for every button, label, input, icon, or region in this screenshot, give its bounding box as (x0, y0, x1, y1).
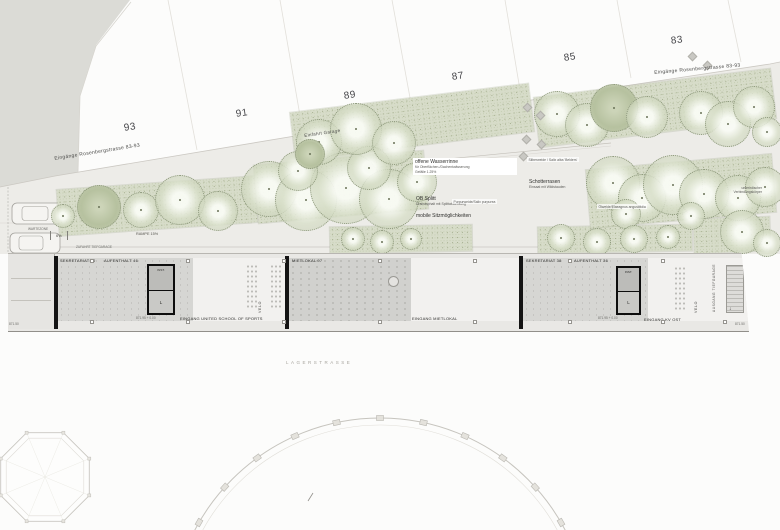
round-building-outline (171, 418, 589, 530)
column-marker (90, 320, 94, 324)
tree-icon (370, 230, 394, 254)
tree-species-label: Silberweide / Salix alba 'Belders' (527, 157, 579, 162)
tree-icon (372, 121, 416, 165)
lift-core: INST. L (616, 266, 641, 315)
tree-icon (51, 204, 75, 228)
tree-icon (77, 185, 121, 229)
arrow-down-icon: ↓ (729, 306, 732, 312)
underground-link-annotation: unterirdischer Verbindungskörper (704, 186, 762, 195)
column-marker (378, 320, 382, 324)
building-number: 85 (563, 51, 577, 65)
lift-label: L (618, 292, 639, 313)
column-marker (186, 259, 190, 263)
entrance-zone-mietlokal (411, 258, 519, 321)
bike-racks (246, 264, 258, 308)
tree-icon (155, 175, 205, 225)
ramp-label: RAMPE 15% (136, 232, 158, 237)
tree-icon (123, 192, 159, 228)
street-name-label: LAGERSTRASSE (286, 360, 352, 366)
round-building-buttresses (195, 416, 565, 527)
seating-annotation: mobile Sitzmöglichkeiten (416, 213, 471, 219)
ground-floor-plan: INST. L INST. L SEKRETARIAT 20 AUFENTHAL… (8, 253, 749, 332)
elevation-label: 871.50 (735, 322, 745, 326)
annotation-sub: Gefälle 1.25% (415, 170, 515, 174)
tree-icon (656, 225, 680, 249)
column-marker (186, 320, 190, 324)
annotation-sub: Einsaat mit Wildstauden (529, 185, 565, 189)
tree-icon (295, 139, 325, 169)
room-label: SEKRETARIAT 38 (526, 258, 561, 263)
elevation-label: 871.50 (9, 322, 19, 326)
building-number: 93 (123, 121, 137, 135)
tree-icon (198, 191, 238, 231)
column-marker (90, 259, 94, 263)
tree-icon (400, 228, 422, 250)
level-label: 871.95 + 0.00 (598, 316, 618, 320)
wartezone-label: WARTEZONE (28, 227, 48, 231)
lift-core: INST. L (147, 264, 175, 315)
schotterrasen-annotation: Schotterrasen Einsaat mit Wildstauden (529, 179, 565, 190)
entrance-label: EINGANG MIETLOKAL (412, 316, 457, 321)
water-channel-annotation: offene Wasserrinne für Oberflächen-/Dach… (413, 158, 517, 175)
tree-icon (753, 229, 780, 257)
tree-icon (677, 202, 705, 230)
tree-icon (547, 224, 575, 252)
tree-icon (752, 117, 780, 147)
bike-racks (674, 266, 686, 310)
tree-icon (620, 225, 648, 253)
tree-species-label: Purpurweide/Salix purpurea (452, 199, 497, 204)
site-plan: INST. L INST. L SEKRETARIAT 20 AUFENTHAL… (0, 0, 780, 530)
column-marker (473, 259, 477, 263)
building-number: 91 (235, 107, 249, 121)
column-marker (661, 320, 665, 324)
level-label: 871.95 + 0.00 (136, 316, 156, 320)
entrance-label: EINGANG UNITED SCHOOL OF SPORTS (180, 316, 263, 321)
column-marker (282, 259, 286, 263)
garage-ramp-area (8, 254, 55, 329)
column-marker (282, 320, 286, 324)
column-marker (378, 259, 382, 263)
room-mietlokal (289, 258, 411, 321)
garage-access-label: ZUFAHRT TIEFGARAGE (76, 245, 112, 249)
annotation-line: Verbindungskörper (704, 190, 762, 194)
tree-icon (583, 228, 611, 256)
building-number: 83 (670, 34, 684, 48)
column-marker (568, 259, 572, 263)
room-label: AUFENTHALT 46 (104, 258, 138, 263)
column-marker (473, 320, 477, 324)
tree-species-label: Ölweide/Elaeagnus angustifolia (597, 204, 647, 209)
velo-label: VELO (258, 287, 262, 313)
tree-icon (341, 227, 365, 251)
column-marker (661, 259, 665, 263)
shaft-label: INST. (618, 268, 639, 292)
velo-label: VELO (694, 287, 698, 313)
column (388, 276, 399, 287)
column-marker (723, 320, 727, 324)
room-label: AUFENTHALT 36 (574, 258, 608, 263)
column-marker (568, 320, 572, 324)
lift-label: L (149, 291, 173, 313)
building-number: 87 (451, 70, 465, 84)
survey-mark (308, 493, 313, 501)
pavilion-octagon (0, 431, 91, 523)
slope-label: 6% (50, 231, 68, 240)
garage-exit-label: AUSGANG TIEFGARAGE (712, 268, 716, 312)
shaft-label: INST. (149, 266, 173, 291)
building-number: 89 (343, 89, 357, 103)
room-label: MIETLOKAL 97 (292, 258, 322, 263)
tree-icon (626, 96, 668, 138)
bike-racks (270, 264, 282, 308)
